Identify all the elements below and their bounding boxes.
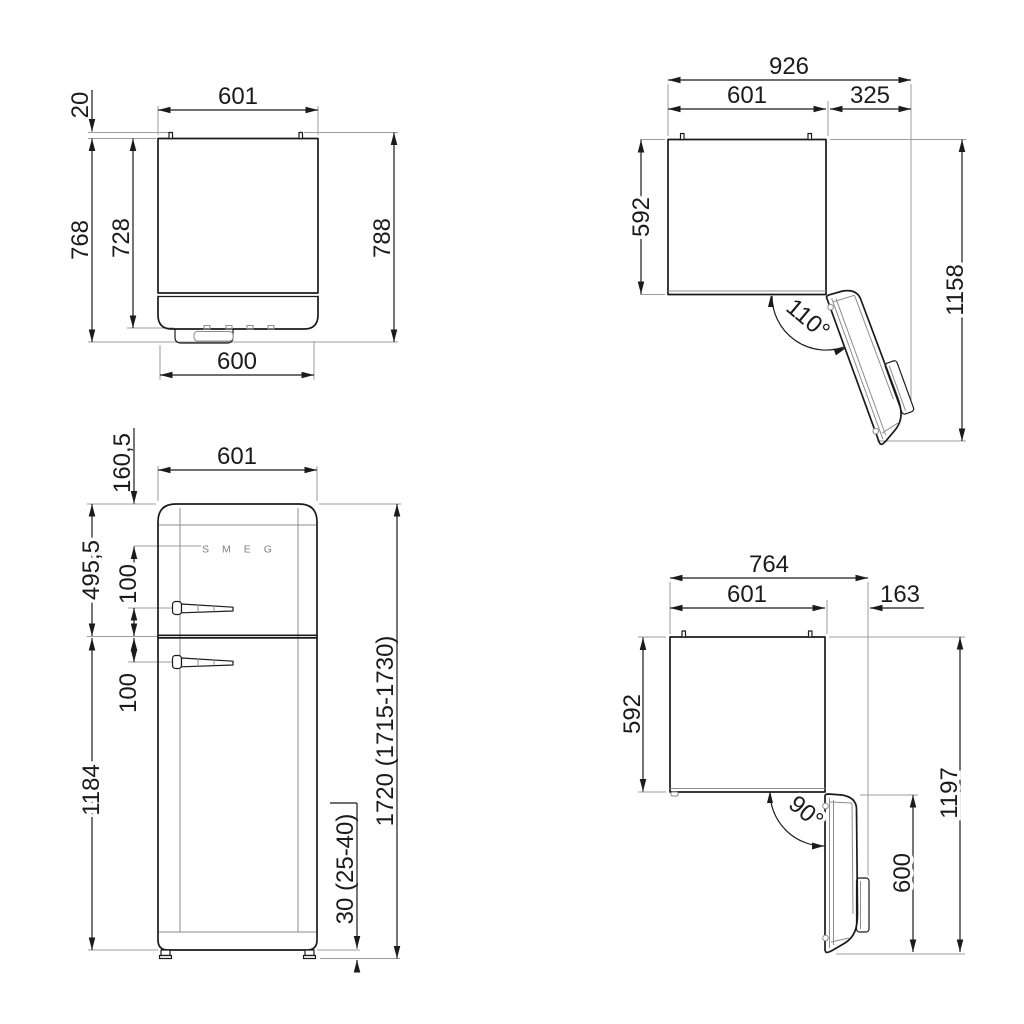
dim-front-handle-above: 100 xyxy=(115,564,142,604)
dimension-drawing-page: 601 20 768 728 788 600 xyxy=(0,0,1024,1024)
angle-110-label: 110° xyxy=(781,294,835,345)
plan110-cabinet xyxy=(668,134,826,295)
front-outline xyxy=(158,504,317,950)
dim-front-feet-height: 30 (25-40) xyxy=(332,814,359,925)
feet xyxy=(160,950,316,959)
view-plan-110: 926 601 325 592 1158 110° xyxy=(628,53,969,446)
arc-arrow-end xyxy=(834,348,847,355)
hinge-pin-left xyxy=(169,133,173,139)
door-open-90 xyxy=(823,794,869,952)
upper-door-handle xyxy=(173,602,234,615)
rear-dimensions: 601 20 768 728 788 600 xyxy=(67,83,396,375)
dim-front-width: 601 xyxy=(217,443,257,470)
view-rear-top: 601 20 768 728 788 600 xyxy=(67,83,398,380)
dim-rear-depth-with-pins: 788 xyxy=(369,218,396,258)
fridge-dimension-drawing: 601 20 768 728 788 600 xyxy=(0,0,1024,1024)
compressor-unit xyxy=(175,329,233,343)
dim-90-depth-total: 1197 xyxy=(936,767,963,819)
dim-front-lower-height: 1184 xyxy=(78,764,105,816)
dim-90-door-swing: 163 xyxy=(880,581,920,608)
dim-110-width-body: 601 xyxy=(727,82,767,109)
arc-arrow-start xyxy=(768,295,774,307)
view-front: 601 160,5 495,5 100 100 1184 1720 (1715-… xyxy=(78,428,401,971)
front-fridge: SMEG xyxy=(158,504,317,959)
front-dimensions: 601 160,5 495,5 100 100 1184 1720 (1715-… xyxy=(78,428,399,971)
dim-front-handle-below: 100 xyxy=(115,673,142,713)
plan110-dimensions: 926 601 325 592 1158 xyxy=(628,53,969,441)
hinge-pin-right xyxy=(809,631,813,637)
angle-90: 90° xyxy=(767,790,828,849)
dim-rear-depth-inner: 728 xyxy=(108,218,135,258)
dim-rear-width: 601 xyxy=(218,83,258,110)
plan110-extension-lines xyxy=(640,84,966,441)
dim-90-width-body: 601 xyxy=(727,581,767,608)
hinge-pin-right xyxy=(299,133,303,139)
lower-door-handle xyxy=(173,656,234,669)
dim-front-logo-offset: 160,5 xyxy=(109,433,136,493)
angle-90-label: 90° xyxy=(783,790,828,834)
dim-110-door-swing: 325 xyxy=(850,82,890,109)
dim-110-width-total: 926 xyxy=(769,53,809,80)
plan90-cabinet xyxy=(670,631,825,796)
dim-rear-depth-total: 768 xyxy=(67,220,94,260)
dim-front-top-to-split: 495,5 xyxy=(78,540,105,600)
angle-110: 110° xyxy=(768,294,846,356)
dim-front-height-total: 1720 (1715-1730) xyxy=(372,636,399,827)
dim-110-depth-total: 1158 xyxy=(942,264,969,316)
dim-90-door-width: 600 xyxy=(889,853,916,893)
dim-110-depth-body: 592 xyxy=(628,197,655,237)
view-plan-90: 764 601 163 592 1197 600 90° xyxy=(619,551,965,954)
dim-rear-width-bottom: 600 xyxy=(217,348,257,375)
brand-logo: SMEG xyxy=(202,544,285,556)
dim-90-depth-body: 592 xyxy=(619,694,646,734)
hinge-pin-left xyxy=(681,134,685,140)
arc-arrow-end xyxy=(812,843,824,850)
door-open-110 xyxy=(824,281,922,446)
hinge-pin-right xyxy=(808,134,812,140)
body-foot xyxy=(671,792,678,796)
dim-rear-pin-height: 20 xyxy=(67,92,94,119)
hinge-pin-left xyxy=(682,631,686,637)
dim-90-width-total: 764 xyxy=(749,551,789,578)
rear-cabinet-outline xyxy=(158,133,318,344)
